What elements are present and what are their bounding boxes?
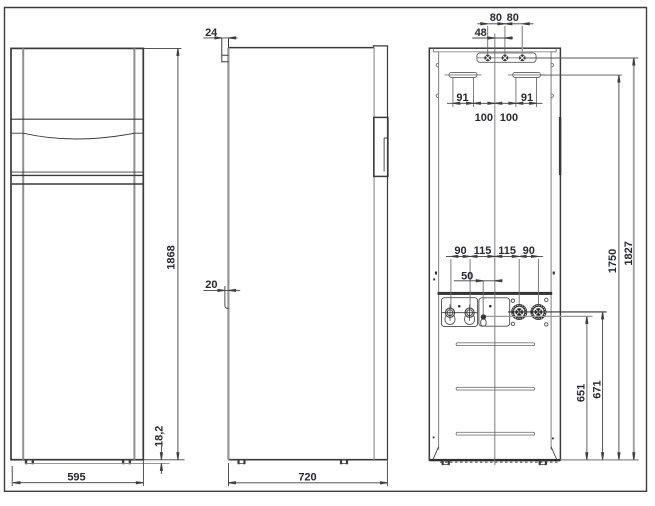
svg-text:18,2: 18,2 [154,426,166,447]
svg-text:24: 24 [205,27,218,39]
svg-text:80: 80 [507,12,519,24]
svg-text:20: 20 [205,279,217,291]
svg-text:80: 80 [490,12,502,24]
svg-text:720: 720 [298,471,316,483]
svg-text:1827: 1827 [623,241,635,265]
svg-text:115: 115 [474,245,492,257]
svg-text:91: 91 [521,92,533,104]
svg-text:671: 671 [592,380,604,398]
svg-text:90: 90 [523,245,535,257]
svg-text:651: 651 [576,384,588,402]
svg-text:48: 48 [475,27,487,39]
svg-text:50: 50 [461,270,473,282]
svg-text:91: 91 [456,92,468,104]
svg-text:100: 100 [500,112,518,124]
svg-text:1750: 1750 [607,249,619,273]
svg-text:100: 100 [475,112,493,124]
svg-text:595: 595 [67,471,85,483]
svg-text:90: 90 [454,245,466,257]
svg-text:115: 115 [498,245,516,257]
svg-text:1868: 1868 [166,245,178,269]
